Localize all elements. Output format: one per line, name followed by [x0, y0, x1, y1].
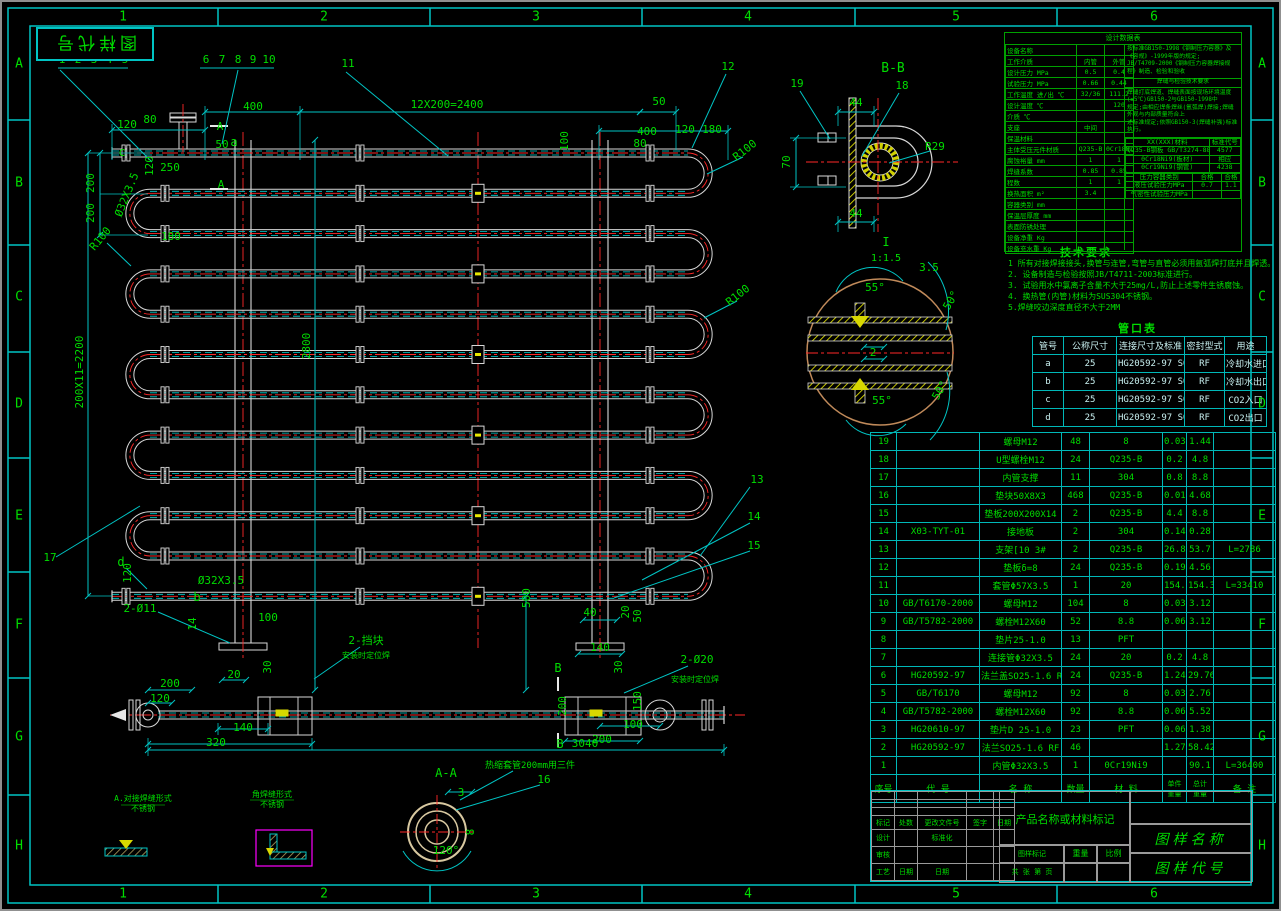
bom-cell: 11: [1062, 469, 1090, 487]
titleblock-role: 日期: [895, 864, 918, 881]
annotation-text: 9: [250, 53, 257, 66]
annotation-text: 不锈钢: [260, 799, 284, 809]
nozzle-cell: RF: [1185, 409, 1225, 427]
frame-col-label: 2: [320, 10, 328, 25]
tech-note-line: 5.焊缝咬边深度直径不大于2MM: [1008, 302, 1268, 313]
annotation-text: 14: [747, 510, 761, 523]
annotation-text: 140: [590, 641, 610, 654]
bom-cell: [1214, 433, 1276, 451]
nozzle-cell: b: [1033, 373, 1064, 391]
frame-col-label: 1: [119, 887, 127, 902]
annotation-text: R29: [925, 140, 945, 153]
nozzle-cell: c: [1033, 391, 1064, 409]
annotation-text: 100: [558, 131, 571, 151]
bom-cell: 10: [871, 595, 897, 613]
cad-viewport: 123456789101112a40012X200=24005012080A50…: [0, 0, 1281, 911]
bom-cell: 1: [1062, 757, 1090, 775]
annotation-text: 50°: [940, 288, 961, 312]
frame-col-label: 4: [744, 10, 752, 25]
params-cell: 设备净重 Kg: [1006, 232, 1077, 243]
annotation-text: A: [217, 120, 224, 133]
bom-cell: PFT: [1090, 631, 1163, 649]
frame-row-label: H: [1258, 839, 1266, 854]
params-cell: 工作介质: [1006, 56, 1077, 67]
titleblock-role: [918, 847, 967, 864]
annotation-text: 3.5: [919, 261, 939, 274]
title-block: 标记处数更改文件号签字日期设计标准化审核工艺日期日期产品名称或材料标记图样标记重…: [870, 790, 1253, 882]
params-cell: [1077, 45, 1105, 56]
nozzle-cell: 冷却水进口: [1225, 355, 1267, 373]
titleblock-scale-value: [1096, 862, 1131, 883]
bom-cell: 18: [871, 451, 897, 469]
titleblock-role: [967, 864, 994, 881]
annotation-text: 200X11=2200: [73, 336, 86, 409]
bom-cell: 20: [1090, 577, 1163, 595]
annotation-text: 14: [186, 617, 199, 631]
params-cell: 保温材料: [1006, 133, 1077, 144]
annotation-text: 80: [633, 137, 646, 150]
bom-cell: 16: [871, 487, 897, 505]
frame-col-label: 6: [1150, 10, 1158, 25]
annotation-text: 55°: [865, 281, 885, 294]
titleblock-weight-label: 重量: [1063, 844, 1098, 864]
bom-cell: 154.3: [1163, 577, 1187, 595]
tech-notes: 1 所有对接焊接接头,换管与连管,弯管与直管必须用氩弧焊打底并且焊透。2. 设备…: [1008, 258, 1268, 313]
annotation-text: 安装时定位焊: [671, 674, 719, 684]
titleblock-weight-value: [1063, 862, 1098, 883]
annotation-text: 7: [219, 53, 226, 66]
params-cell: [1077, 111, 1105, 122]
titleblock-drawing-code: 图样代号: [1129, 852, 1252, 883]
titleblock-blank: [895, 792, 918, 800]
bom-cell: 0.2: [1163, 649, 1187, 667]
bom-cell: 0.03: [1163, 685, 1187, 703]
frame-row-label: G: [1258, 730, 1266, 745]
params-cell: 1: [1077, 177, 1105, 188]
bom-cell: 1: [871, 757, 897, 775]
frame-row-label: G: [15, 730, 23, 745]
bom-cell: 5: [871, 685, 897, 703]
annotation-text: 200: [556, 696, 569, 716]
bom-cell: 24: [1062, 451, 1090, 469]
frame-row-label: C: [15, 290, 23, 305]
frame-row-label: D: [15, 397, 23, 412]
bom-cell: [897, 469, 980, 487]
titleblock-blank: [895, 800, 918, 808]
bom-cell: 58.42: [1187, 739, 1214, 757]
annotation-text: 安装时定位焊: [342, 650, 390, 660]
nozzle-cell: 25: [1064, 373, 1117, 391]
annotation-text: a: [230, 135, 237, 149]
bom-cell: [897, 487, 980, 505]
bom-cell: [1214, 685, 1276, 703]
bom-cell: 0.06: [1163, 703, 1187, 721]
bom-cell: 4.8: [1187, 451, 1214, 469]
frame-col-label: 5: [952, 887, 960, 902]
tech-note-line: 2. 设备制造与检验按照JB/T4711-2003标准进行。: [1008, 269, 1268, 280]
bom-cell: 6: [871, 667, 897, 685]
annotation-text: A.对接焊缝形式: [114, 793, 172, 803]
bom-cell: 12: [871, 559, 897, 577]
bom-cell: [897, 451, 980, 469]
bom-cell: HG20592-97: [897, 667, 980, 685]
bom-cell: 垫块50X8X3: [980, 487, 1062, 505]
titleblock-blank: [967, 800, 994, 808]
bom-cell: 4.4: [1163, 505, 1187, 523]
params-cell: [1077, 232, 1105, 243]
bom-cell: 法兰SO25-1.6 RF: [980, 739, 1062, 757]
frame-row-label: B: [15, 176, 23, 191]
params-cell: 设计温度 ℃: [1006, 100, 1077, 111]
bom-cell: [897, 577, 980, 595]
params-cell: 腐蚀裕量 mm: [1006, 155, 1077, 166]
bom-cell: 3.12: [1187, 595, 1214, 613]
titleblock-role: 设计: [872, 830, 895, 847]
annotation-text: 120: [117, 118, 137, 131]
params-cell: 0.66: [1077, 78, 1105, 89]
bom-cell: 8: [1090, 685, 1163, 703]
annotation-text: 18: [895, 79, 908, 92]
bom-cell: 垫片D 25-1.0: [980, 721, 1062, 739]
annotation-text: 30: [612, 660, 625, 673]
bom-cell: [897, 559, 980, 577]
titleblock-role: 标准化: [918, 830, 967, 847]
nozzle-cell: HG20592-97 SO25-1.6: [1117, 373, 1185, 391]
annotation-text: 250: [160, 161, 180, 174]
annotation-text: 120: [143, 156, 156, 176]
titleblock-blank: [872, 800, 895, 808]
titleblock-scale-label: 比例: [1096, 844, 1131, 864]
bom-cell: 0.19: [1163, 559, 1187, 577]
titleblock-blank: [967, 792, 994, 800]
bom-cell: Q235-B: [1090, 487, 1163, 505]
bom-cell: HG20592-97: [897, 739, 980, 757]
annotation-text: 100: [258, 611, 278, 624]
annotation-text: 120: [121, 563, 134, 583]
bom-cell: 支架[10 3#: [980, 541, 1062, 559]
bom-cell: [1214, 505, 1276, 523]
annotation-text: 50: [652, 95, 665, 108]
bom-cell: 8: [871, 631, 897, 649]
bom-cell: 8.8: [1187, 469, 1214, 487]
bom-cell: 104: [1062, 595, 1090, 613]
annotation-text: 12: [721, 60, 734, 73]
bom-cell: [1214, 523, 1276, 541]
annotation-text: R100: [87, 224, 114, 253]
params-cell: Q235-B: [1077, 144, 1105, 155]
bom-cell: [1214, 739, 1276, 757]
frame-row-label: A: [1258, 57, 1266, 72]
nozzle-cell: RF: [1185, 355, 1225, 373]
params-cell: [1077, 243, 1105, 254]
bom-cell: 0.06: [1163, 721, 1187, 739]
annotation-text: 50: [215, 138, 228, 151]
bom-cell: 螺母M12: [980, 595, 1062, 613]
bom-cell: 3: [871, 721, 897, 739]
annotation-text: 80: [143, 113, 156, 126]
bom-cell: 接地板: [980, 523, 1062, 541]
bom-cell: 垫片25-1.0: [980, 631, 1062, 649]
nozzle-table: 管号公称尺寸连接尺寸及标准密封型式用途a25HG20592-97 SO25-1.…: [1032, 336, 1267, 427]
bom-cell: 2: [1062, 541, 1090, 559]
params-cell: 焊缝系数: [1006, 166, 1077, 177]
titleblock-sheet: 共 张 第 页: [999, 862, 1065, 883]
bom-cell: [897, 541, 980, 559]
bom-cell: 2.76: [1187, 685, 1214, 703]
bom-cell: [1214, 613, 1276, 631]
bom-cell: GB/T5782-2000: [897, 703, 980, 721]
params-cell: [1077, 100, 1105, 111]
titleblock-blank: [918, 800, 967, 808]
annotation-text: A-A: [435, 766, 457, 780]
bom-cell: 29.76: [1187, 667, 1214, 685]
annotation-text: 2-挡块: [348, 633, 383, 647]
bom-cell: 24: [1062, 649, 1090, 667]
annotation-text: 500: [520, 588, 533, 608]
titleblock-blank: [872, 792, 895, 800]
annotation-text: 44: [849, 96, 863, 109]
titleblock-blank: [918, 792, 967, 800]
bom-cell: GB/T6170-2000: [897, 595, 980, 613]
bom-cell: 11: [871, 577, 897, 595]
bom-cell: GB/T6170: [897, 685, 980, 703]
annotation-text: c: [118, 145, 125, 159]
annotation-text: B-B: [881, 61, 905, 76]
bom-cell: 内管Φ32X3.5: [980, 757, 1062, 775]
params-cell: 换热面积 m²: [1006, 188, 1077, 199]
annotation-text: 50: [631, 609, 644, 622]
bom-cell: 13: [1062, 631, 1090, 649]
nozzle-cell: 25: [1064, 355, 1117, 373]
bom-cell: 内管支撑: [980, 469, 1062, 487]
bom-cell: 0.06: [1163, 613, 1187, 631]
bom-cell: X03-TYT-01: [897, 523, 980, 541]
params-cell: [1077, 210, 1105, 221]
bom-cell: 92: [1062, 685, 1090, 703]
nozzle-cell: a: [1033, 355, 1064, 373]
annotation-text: 2800: [300, 333, 313, 360]
annotation-text: B: [554, 661, 561, 675]
bom-cell: 2: [871, 739, 897, 757]
bom-cell: [897, 433, 980, 451]
bom-cell: 2: [1062, 505, 1090, 523]
nozzle-cell: 25: [1064, 409, 1117, 427]
bom-cell: 4.8: [1187, 649, 1214, 667]
annotation-text: 角焊缝形式: [252, 789, 292, 799]
titleblock-role: [967, 830, 994, 847]
bom-cell: 17: [871, 469, 897, 487]
frame-col-label: 3: [532, 887, 540, 902]
frame-col-label: 4: [744, 887, 752, 902]
bom-cell: 20: [1090, 649, 1163, 667]
bom-cell: [897, 649, 980, 667]
bom-cell: 2: [1062, 523, 1090, 541]
annotation-text: 200: [160, 677, 180, 690]
titleblock-blank: [895, 808, 918, 816]
annotation-text: 44: [849, 207, 863, 220]
params-cell: 试验压力 MPa: [1006, 78, 1077, 89]
titleblock-header: 签字: [967, 816, 994, 830]
annotation-text: Ø32X3.5: [198, 574, 244, 587]
bom-cell: GB/T5782-2000: [897, 613, 980, 631]
frame-row-label: E: [15, 509, 23, 524]
annotation-text: B: [556, 737, 563, 751]
nozzle-cell: HG20592-97 SO25-1.6: [1117, 409, 1185, 427]
params-cell: [1077, 221, 1105, 232]
annotation-text: I: [882, 235, 889, 249]
bom-cell: 0.01: [1163, 487, 1187, 505]
frame-row-label: F: [1258, 618, 1266, 633]
annotation-text: 2-Ø11: [123, 602, 156, 615]
frame-row-label: C: [1258, 290, 1266, 305]
annotation-text: 200: [84, 203, 97, 223]
bom-cell: 304: [1090, 469, 1163, 487]
bom-cell: 螺栓M12X60: [980, 613, 1062, 631]
annotation-text: 40: [583, 606, 596, 619]
annotation-text: 120: [675, 123, 695, 136]
bom-cell: 24: [1062, 667, 1090, 685]
bom-cell: 5.52: [1187, 703, 1214, 721]
params-cell: 支座: [1006, 122, 1077, 133]
nozzle-header: 密封型式: [1185, 337, 1225, 355]
titleblock-product-mark: 产品名称或材料标记: [999, 791, 1131, 846]
annotation-text: 150: [631, 691, 644, 711]
titleblock-role: 工艺: [872, 864, 895, 881]
bom-cell: PFT: [1090, 721, 1163, 739]
bom-cell: 0.14: [1163, 523, 1187, 541]
bom-cell: HG20610-97: [897, 721, 980, 739]
annotation-text: A: [218, 178, 225, 191]
params-cell: 0.5: [1077, 67, 1105, 78]
bom-cell: 8: [1090, 595, 1163, 613]
annotation-text: 320: [206, 736, 226, 749]
annotation-text: 1:1.5: [871, 253, 901, 264]
bom-cell: 垫板δ=8: [980, 559, 1062, 577]
bom-cell: 304: [1090, 523, 1163, 541]
bom-cell: 23: [1062, 721, 1090, 739]
design-params-table: 设计数据表设备名称工作介质内管外管设计压力 MPa0.50.4试验压力 MPa0…: [1004, 32, 1242, 252]
params-cell: 主体受压元件材质: [1006, 144, 1077, 155]
tech-note-line: 3. 试验用水中氯离子含量不大于25mg/L,防止上述零件生锈腐蚀。: [1008, 280, 1268, 291]
frame-row-label: F: [15, 618, 23, 633]
bom-cell: [1187, 631, 1214, 649]
params-cell: 内管: [1077, 56, 1105, 67]
nozzle-header: 连接尺寸及标准: [1117, 337, 1185, 355]
bom-cell: [1214, 487, 1276, 505]
annotation-text: 13: [750, 473, 763, 486]
params-cell: 1: [1077, 155, 1105, 166]
frame-row-label: A: [15, 57, 23, 72]
params-cell: [1077, 133, 1105, 144]
titleblock-drawing-name: 图样名称: [1129, 823, 1252, 854]
bom-cell: 4.56: [1187, 559, 1214, 577]
frame-col-label: 3: [532, 10, 540, 25]
annotation-text: 140: [233, 721, 253, 734]
annotation-text: 10: [262, 53, 275, 66]
bom-cell: [1163, 631, 1187, 649]
bom-cell: 14: [871, 523, 897, 541]
annotation-text: 30: [261, 660, 274, 673]
titleblock-blank: [967, 808, 994, 816]
bom-cell: 90.1: [1187, 757, 1214, 775]
titleblock-header: 标记: [872, 816, 895, 830]
nozzle-cell: HG20592-97 SO25-1.6: [1117, 391, 1185, 409]
params-cell: 中间: [1077, 122, 1105, 133]
bom-cell: 154.3: [1187, 577, 1214, 595]
bom-cell: 4: [871, 703, 897, 721]
bom-cell: 连接管Φ32X3.5: [980, 649, 1062, 667]
nozzle-cell: RF: [1185, 391, 1225, 409]
bom-cell: 0.03: [1163, 595, 1187, 613]
bom-cell: L=36400: [1214, 757, 1276, 775]
annotation-text: 15: [747, 539, 760, 552]
bom-cell: [1214, 595, 1276, 613]
annotation-text: 16: [537, 773, 550, 786]
nozzle-header: 用途: [1225, 337, 1267, 355]
bom-cell: 0Cr19Ni9: [1090, 757, 1163, 775]
annotation-text: R100: [730, 137, 759, 164]
annotation-text: 19: [790, 77, 803, 90]
bom-cell: 0.03: [1163, 433, 1187, 451]
annotation-text: 180: [161, 230, 181, 243]
annotation-text: 2-Ø20: [680, 653, 713, 666]
nozzle-cell: RF: [1185, 373, 1225, 391]
frame-row-label: H: [15, 839, 23, 854]
bom-cell: U型螺栓M12: [980, 451, 1062, 469]
nozzle-table-title: 管口表: [1118, 320, 1157, 336]
annotation-text: R100: [723, 282, 752, 309]
annotation-text: 6: [203, 53, 210, 66]
bom-cell: 24: [1062, 559, 1090, 577]
bom-cell: Q235-B: [1090, 505, 1163, 523]
bom-cell: [1214, 631, 1276, 649]
frame-col-label: 2: [320, 887, 328, 902]
bom-cell: Q235-B: [1090, 451, 1163, 469]
bom-cell: 垫板200X200X14: [980, 505, 1062, 523]
bom-cell: 13: [871, 541, 897, 559]
bom-cell: 螺母M12: [980, 685, 1062, 703]
annotation-text: 120: [150, 692, 170, 705]
nozzle-header: 管号: [1033, 337, 1064, 355]
bom-cell: 8: [1090, 433, 1163, 451]
bom-cell: 15: [871, 505, 897, 523]
bom-cell: [897, 631, 980, 649]
tech-note-line: 4. 换热管(内管)材料为SUS304不锈钢。: [1008, 291, 1268, 302]
bom-cell: Q235-B: [1090, 667, 1163, 685]
titleblock-role: [895, 847, 918, 864]
annotation-text: 8: [235, 53, 242, 66]
annotation-text: 3: [458, 786, 465, 799]
params-cell: 32/36: [1077, 89, 1105, 100]
annotation-text: 120°: [433, 844, 460, 857]
bom-cell: 0.28: [1187, 523, 1214, 541]
titleblock-blank: [918, 808, 967, 816]
bom-cell: 52: [1062, 613, 1090, 631]
bom-table: 19螺母M124880.031.4418U型螺栓M1224Q235-B0.24.…: [870, 432, 1276, 803]
bom-cell: 1.38: [1187, 721, 1214, 739]
params-cell: 工作温度 进/出 ℃: [1006, 89, 1077, 100]
bom-cell: [1214, 649, 1276, 667]
nozzle-cell: 25: [1064, 391, 1117, 409]
bom-cell: [1214, 469, 1276, 487]
nozzle-cell: HG20592-97 SO25-1.6: [1117, 355, 1185, 373]
params-cell: 设计压力 MPa: [1006, 67, 1077, 78]
nozzle-cell: 冷却水出口: [1225, 373, 1267, 391]
stamp-drawing-code: 图样代号: [36, 27, 154, 61]
bom-cell: 0.8: [1163, 469, 1187, 487]
params-cell: 表面防锈处理: [1006, 221, 1077, 232]
params-cell: 设备名称: [1006, 45, 1077, 56]
